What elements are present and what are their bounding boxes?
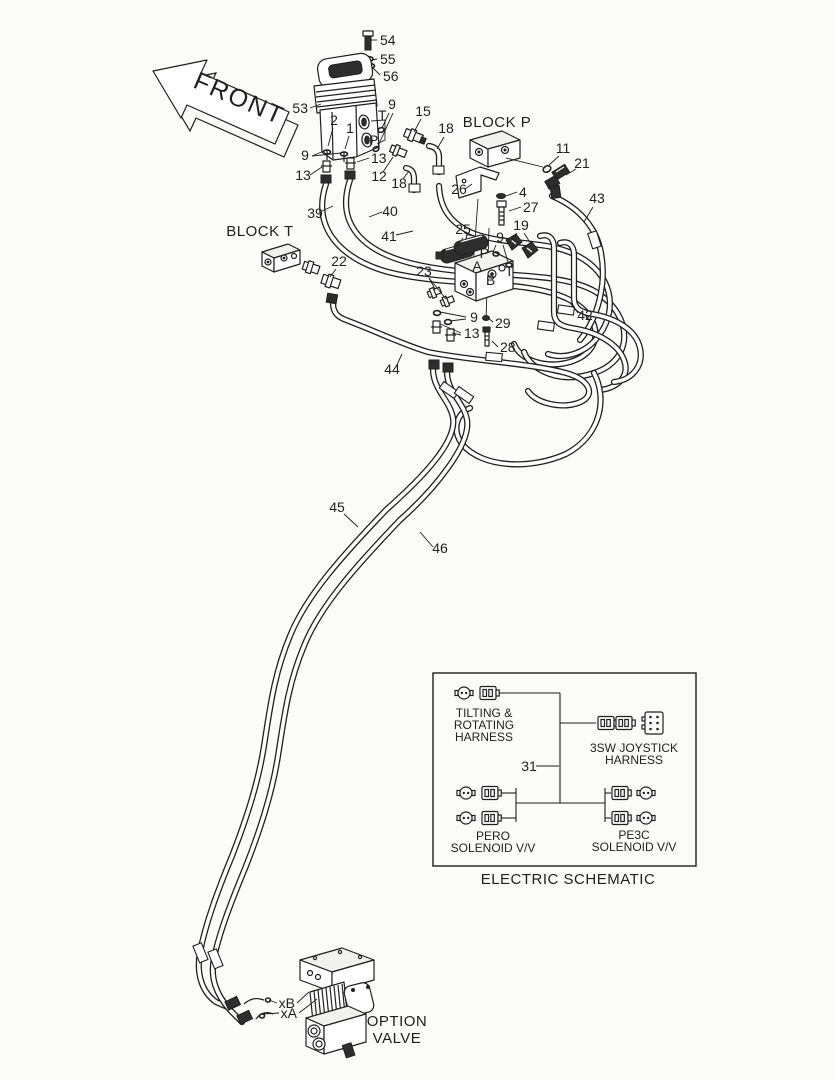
plug-connector-icon bbox=[612, 812, 631, 825]
callout-9: 9 bbox=[388, 96, 396, 112]
block-t-fitting bbox=[302, 260, 321, 276]
plug-connector-icon bbox=[482, 812, 501, 825]
round-connector-icon bbox=[457, 812, 475, 824]
callout-40: 40 bbox=[382, 203, 398, 219]
callout-25: 25 bbox=[455, 221, 471, 237]
parts-diagram-page: FRONT bbox=[0, 0, 835, 1080]
callout-56: 56 bbox=[383, 68, 399, 84]
callout-leader bbox=[492, 341, 498, 347]
callout-leader bbox=[509, 207, 521, 211]
hose-nut bbox=[345, 171, 355, 179]
electric-schematic-title: ELECTRIC SCHEMATIC bbox=[481, 871, 656, 888]
fitting-21 bbox=[545, 164, 570, 198]
round-connector-icon bbox=[637, 812, 655, 824]
hose-nut bbox=[326, 293, 337, 304]
oring-9 bbox=[445, 320, 452, 325]
hydraulic-parts-diagram: FRONT bbox=[0, 0, 835, 1080]
callout-53: 53 bbox=[292, 100, 308, 116]
callout-9: 9 bbox=[496, 229, 504, 245]
callout-2: 2 bbox=[330, 112, 338, 128]
callout-28: 28 bbox=[500, 339, 516, 355]
callout-leader bbox=[310, 167, 322, 175]
hose-end-nut bbox=[237, 1010, 253, 1024]
callout-55: 55 bbox=[380, 51, 396, 67]
plug-connector-icon bbox=[598, 717, 617, 730]
hose-45-core bbox=[199, 369, 454, 1008]
callout-18: 18 bbox=[391, 175, 407, 191]
callout-41: 41 bbox=[381, 228, 397, 244]
oring bbox=[260, 1014, 265, 1018]
callout-leader bbox=[420, 532, 433, 547]
callout-13: 13 bbox=[295, 167, 311, 183]
electric-schematic: TILTING & ROTATING HARNESS 3SW JOYSTICK … bbox=[433, 673, 696, 888]
tilting-harness-label-3: HARNESS bbox=[455, 730, 513, 744]
option-valve-assembly bbox=[225, 948, 375, 1058]
callout-leader bbox=[506, 192, 517, 196]
washer-4 bbox=[497, 194, 506, 199]
round-connector-icon bbox=[455, 687, 473, 699]
hoses bbox=[199, 180, 641, 1022]
callout-a: A bbox=[472, 258, 482, 274]
callout-13: 13 bbox=[464, 325, 480, 341]
fitting-12 bbox=[389, 143, 408, 159]
callout-9: 9 bbox=[470, 309, 478, 325]
block-t-title: BLOCK T bbox=[226, 223, 293, 240]
callout-b: B bbox=[486, 272, 495, 288]
option-valve-title-1: OPTION bbox=[367, 1013, 428, 1030]
callout-1: 1 bbox=[346, 120, 354, 136]
elbow-18-nut bbox=[409, 184, 420, 192]
plug-connector-icon bbox=[616, 717, 635, 730]
round-connector-icon bbox=[637, 787, 655, 799]
callout-4: 4 bbox=[519, 184, 527, 200]
callout-leader bbox=[493, 245, 496, 252]
plug-connector-icon bbox=[612, 787, 631, 800]
bolt-54-shaft bbox=[365, 36, 371, 50]
callout-46: 46 bbox=[432, 540, 448, 556]
callout-xa: xA bbox=[281, 1005, 298, 1021]
plug-connector-icon bbox=[482, 787, 501, 800]
joystick-harness-label-2: HARNESS bbox=[605, 753, 663, 767]
callout-leader bbox=[396, 231, 413, 235]
oring-11 bbox=[542, 164, 552, 173]
hose-loop-bottom-core bbox=[456, 373, 600, 464]
callout-leader bbox=[357, 158, 369, 162]
callout-leader bbox=[297, 992, 309, 1003]
callout-18: 18 bbox=[438, 120, 454, 136]
fitting-23 bbox=[439, 294, 455, 308]
callout-leader bbox=[450, 319, 466, 321]
elbow-fitting bbox=[244, 999, 264, 1004]
callout-21: 21 bbox=[574, 155, 590, 171]
callout-23: 23 bbox=[416, 263, 432, 279]
plug6-connector-icon bbox=[642, 712, 663, 734]
callout-27: 27 bbox=[523, 199, 539, 215]
oring-9 bbox=[377, 127, 384, 133]
callout-p: P bbox=[369, 132, 378, 148]
plug-connector-icon bbox=[480, 687, 499, 700]
pero-label-2: SOLENOID V/V bbox=[451, 841, 536, 855]
callout-13: 13 bbox=[371, 150, 387, 166]
callout-15: 15 bbox=[415, 103, 431, 119]
block-p-title: BLOCK P bbox=[463, 114, 532, 131]
callout-31: 31 bbox=[521, 758, 537, 774]
option-valve-title-2: VALVE bbox=[373, 1030, 422, 1047]
hose-45 bbox=[199, 369, 454, 1008]
front-arrow: FRONT bbox=[153, 60, 298, 157]
callout-leader bbox=[414, 119, 421, 132]
callout-leader bbox=[372, 67, 380, 75]
bolt-27 bbox=[497, 201, 506, 225]
callout-leader bbox=[440, 312, 466, 317]
callout-29: 29 bbox=[495, 315, 511, 331]
callout-t: T bbox=[505, 263, 514, 279]
callout-leader bbox=[549, 156, 559, 165]
callout-leader bbox=[369, 212, 382, 217]
elbow-18-nut bbox=[433, 166, 444, 174]
fitting-19 bbox=[506, 234, 538, 258]
callout-45: 45 bbox=[329, 499, 345, 515]
callout-leader bbox=[437, 137, 444, 149]
hose-loop-bottom bbox=[456, 373, 600, 464]
callout-39: 39 bbox=[307, 205, 323, 221]
port-xa bbox=[316, 975, 321, 980]
callout-44: 44 bbox=[384, 361, 400, 377]
port-xb bbox=[308, 971, 313, 976]
hose-nut bbox=[321, 175, 331, 183]
pe3c-label-2: SOLENOID V/V bbox=[592, 840, 677, 854]
callout-t: T bbox=[378, 107, 387, 123]
callout-26: 26 bbox=[451, 181, 467, 197]
callout-54: 54 bbox=[380, 32, 396, 48]
oring-9 bbox=[434, 311, 441, 316]
callout-19: 19 bbox=[513, 217, 529, 233]
callout-42: 42 bbox=[577, 307, 593, 323]
round-connector-icon bbox=[457, 787, 475, 799]
schematic-box bbox=[433, 673, 696, 866]
hose-end-nut bbox=[225, 996, 241, 1010]
callout-11: 11 bbox=[556, 140, 571, 156]
bolt-54-head bbox=[363, 31, 373, 36]
block-t-assembly bbox=[262, 244, 341, 304]
callout-leader bbox=[344, 514, 358, 527]
callout-9: 9 bbox=[301, 147, 309, 163]
bolt-28 bbox=[483, 327, 490, 346]
callout-22: 22 bbox=[331, 253, 347, 269]
callout-12: 12 bbox=[371, 168, 387, 184]
callout-43: 43 bbox=[589, 190, 605, 206]
